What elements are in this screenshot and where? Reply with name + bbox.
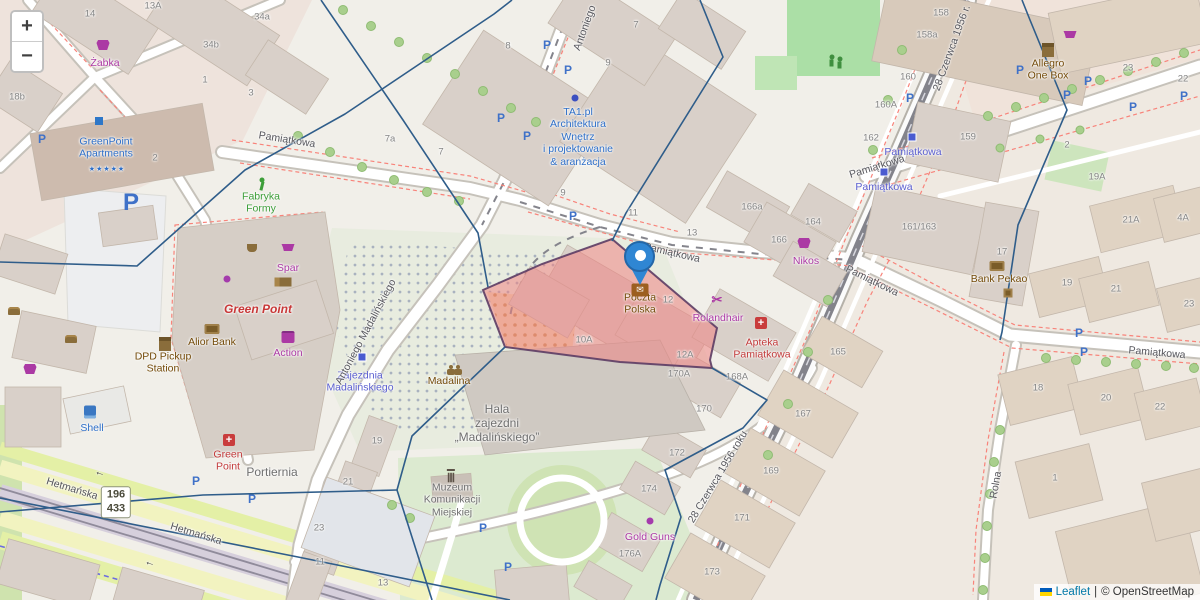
route-badge: 196 433 bbox=[101, 486, 131, 518]
map-canvas[interactable]: ŻabkaGreenPoint Apartments★★★★★Fabryka F… bbox=[0, 0, 1200, 600]
zoom-out-button[interactable]: − bbox=[12, 42, 42, 71]
map-tiles bbox=[0, 0, 1200, 600]
zoom-in-button[interactable]: + bbox=[12, 12, 42, 42]
osm-copyright: © OpenStreetMap bbox=[1101, 586, 1194, 598]
zoom-control: + − bbox=[10, 10, 44, 73]
attribution-separator: | bbox=[1094, 586, 1097, 598]
ukraine-flag-icon bbox=[1040, 588, 1052, 596]
leaflet-link[interactable]: Leaflet bbox=[1056, 586, 1091, 598]
attribution-bar: Leaflet | © OpenStreetMap bbox=[1034, 584, 1200, 600]
